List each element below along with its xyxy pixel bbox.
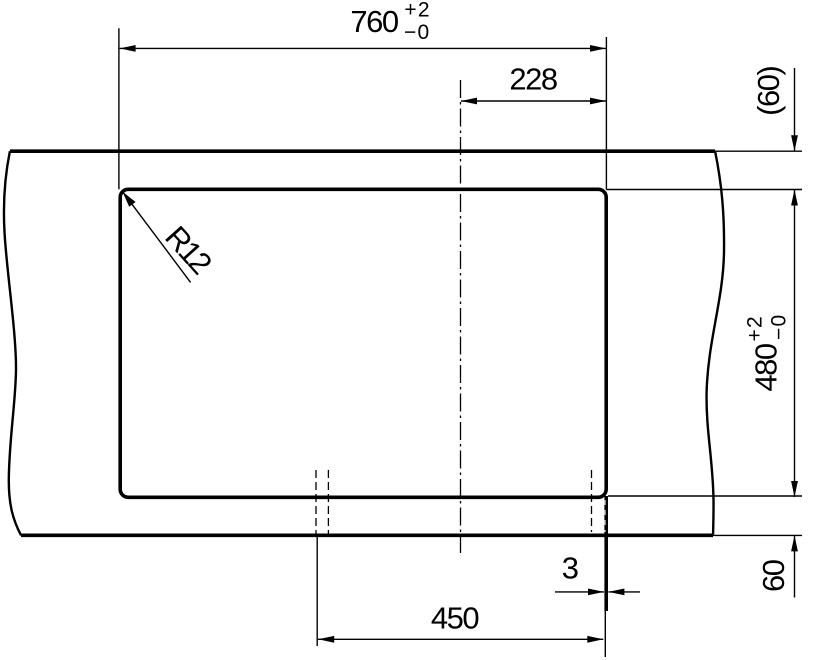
svg-text:+2: +2 [404, 0, 430, 22]
svg-text:3: 3 [562, 551, 578, 586]
svg-text:760: 760 [350, 4, 398, 39]
svg-text:60: 60 [756, 559, 791, 592]
svg-text:−0: −0 [767, 314, 790, 340]
svg-text:−0: −0 [404, 21, 430, 44]
svg-text:+2: +2 [744, 315, 767, 341]
svg-text:450: 450 [431, 601, 479, 636]
svg-text:480: 480 [749, 343, 784, 391]
svg-text:(60): (60) [751, 67, 786, 116]
svg-text:228: 228 [509, 62, 556, 97]
